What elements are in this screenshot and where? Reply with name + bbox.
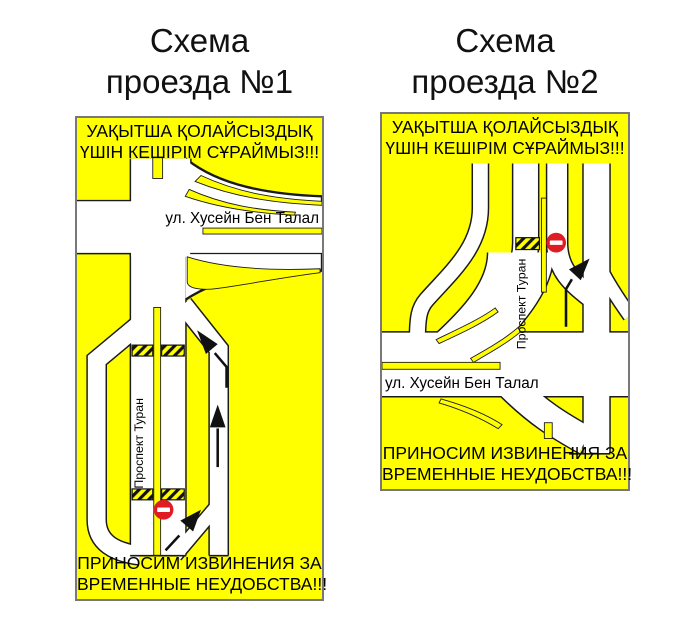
street-label: ул. Хусейн Бен Талал [165,210,319,227]
scheme1-road-map: ул. Хусейн Бен Талал Проспект Туран [77,118,322,599]
footer-line1: ПРИНОСИМ ИЗВИНЕНИЯ ЗА [77,553,322,574]
footer-line1: ПРИНОСИМ ИЗВИНЕНИЯ ЗА [382,443,628,464]
header-line1: УАҚЫТША ҚОЛАЙСЫЗДЫҚ [77,121,322,142]
no-entry-icon [154,500,174,520]
scheme1-title-line1: Схема [75,20,324,61]
scheme2-road-map: ул. Хусейн Бен Талал Проспект Туран [382,114,628,489]
header-line2: ҮШІН КЕШІРІМ СҰРАЙМЫЗ!!! [77,142,322,163]
scheme1-apology-header: УАҚЫТША ҚОЛАЙСЫЗДЫҚ ҮШІН КЕШІРІМ СҰРАЙМЫ… [77,121,322,163]
scheme1-title-line2: проезда №1 [75,61,324,102]
scheme1-title: Схема проезда №1 [75,20,324,102]
avenue-label: Проспект Туран [132,398,146,489]
closure-barriers [516,238,540,250]
road-surfaces [382,163,628,453]
scheme2-title: Схема проезда №2 [380,20,630,102]
barrier-icon [516,238,540,250]
barrier-icon [132,489,153,500]
header-line2: ҮШІН КЕШІРІМ СҰРАЙМЫЗ!!! [382,138,628,159]
scheme2-apology-footer: ПРИНОСИМ ИЗВИНЕНИЯ ЗА ВРЕМЕННЫЕ НЕУДОБСТ… [382,443,628,485]
street-median-strip [382,362,500,369]
avenue-median-strip [541,198,546,292]
street-label: ул. Хусейн Бен Талал [385,375,539,392]
barrier-icon [162,345,185,356]
barrier-icon [132,345,153,356]
header-line1: УАҚЫТША ҚОЛАЙСЫЗДЫҚ [382,117,628,138]
no-entry-icon [546,233,566,253]
scheme2-title-line2: проезда №2 [380,61,630,102]
avenue-label: Проспект Туран [515,259,529,350]
scheme2-title-line1: Схема [380,20,630,61]
median-notch [544,423,552,439]
street-median-strip [203,228,322,234]
scheme1-apology-footer: ПРИНОСИМ ИЗВИНЕНИЯ ЗА ВРЕМЕННЫЕ НЕУДОБСТ… [77,553,322,595]
barrier-icon [162,489,185,500]
footer-line2: ВРЕМЕННЫЕ НЕУДОБСТВА!!! [77,574,322,595]
scheme1-panel: ул. Хусейн Бен Талал Проспект Туран УАҚЫ… [75,116,324,601]
scheme2-panel: ул. Хусейн Бен Талал Проспект Туран УАҚЫ… [380,112,630,491]
footer-line2: ВРЕМЕННЫЕ НЕУДОБСТВА!!! [382,464,628,485]
scheme2-apology-header: УАҚЫТША ҚОЛАЙСЫЗДЫҚ ҮШІН КЕШІРІМ СҰРАЙМЫ… [382,117,628,159]
